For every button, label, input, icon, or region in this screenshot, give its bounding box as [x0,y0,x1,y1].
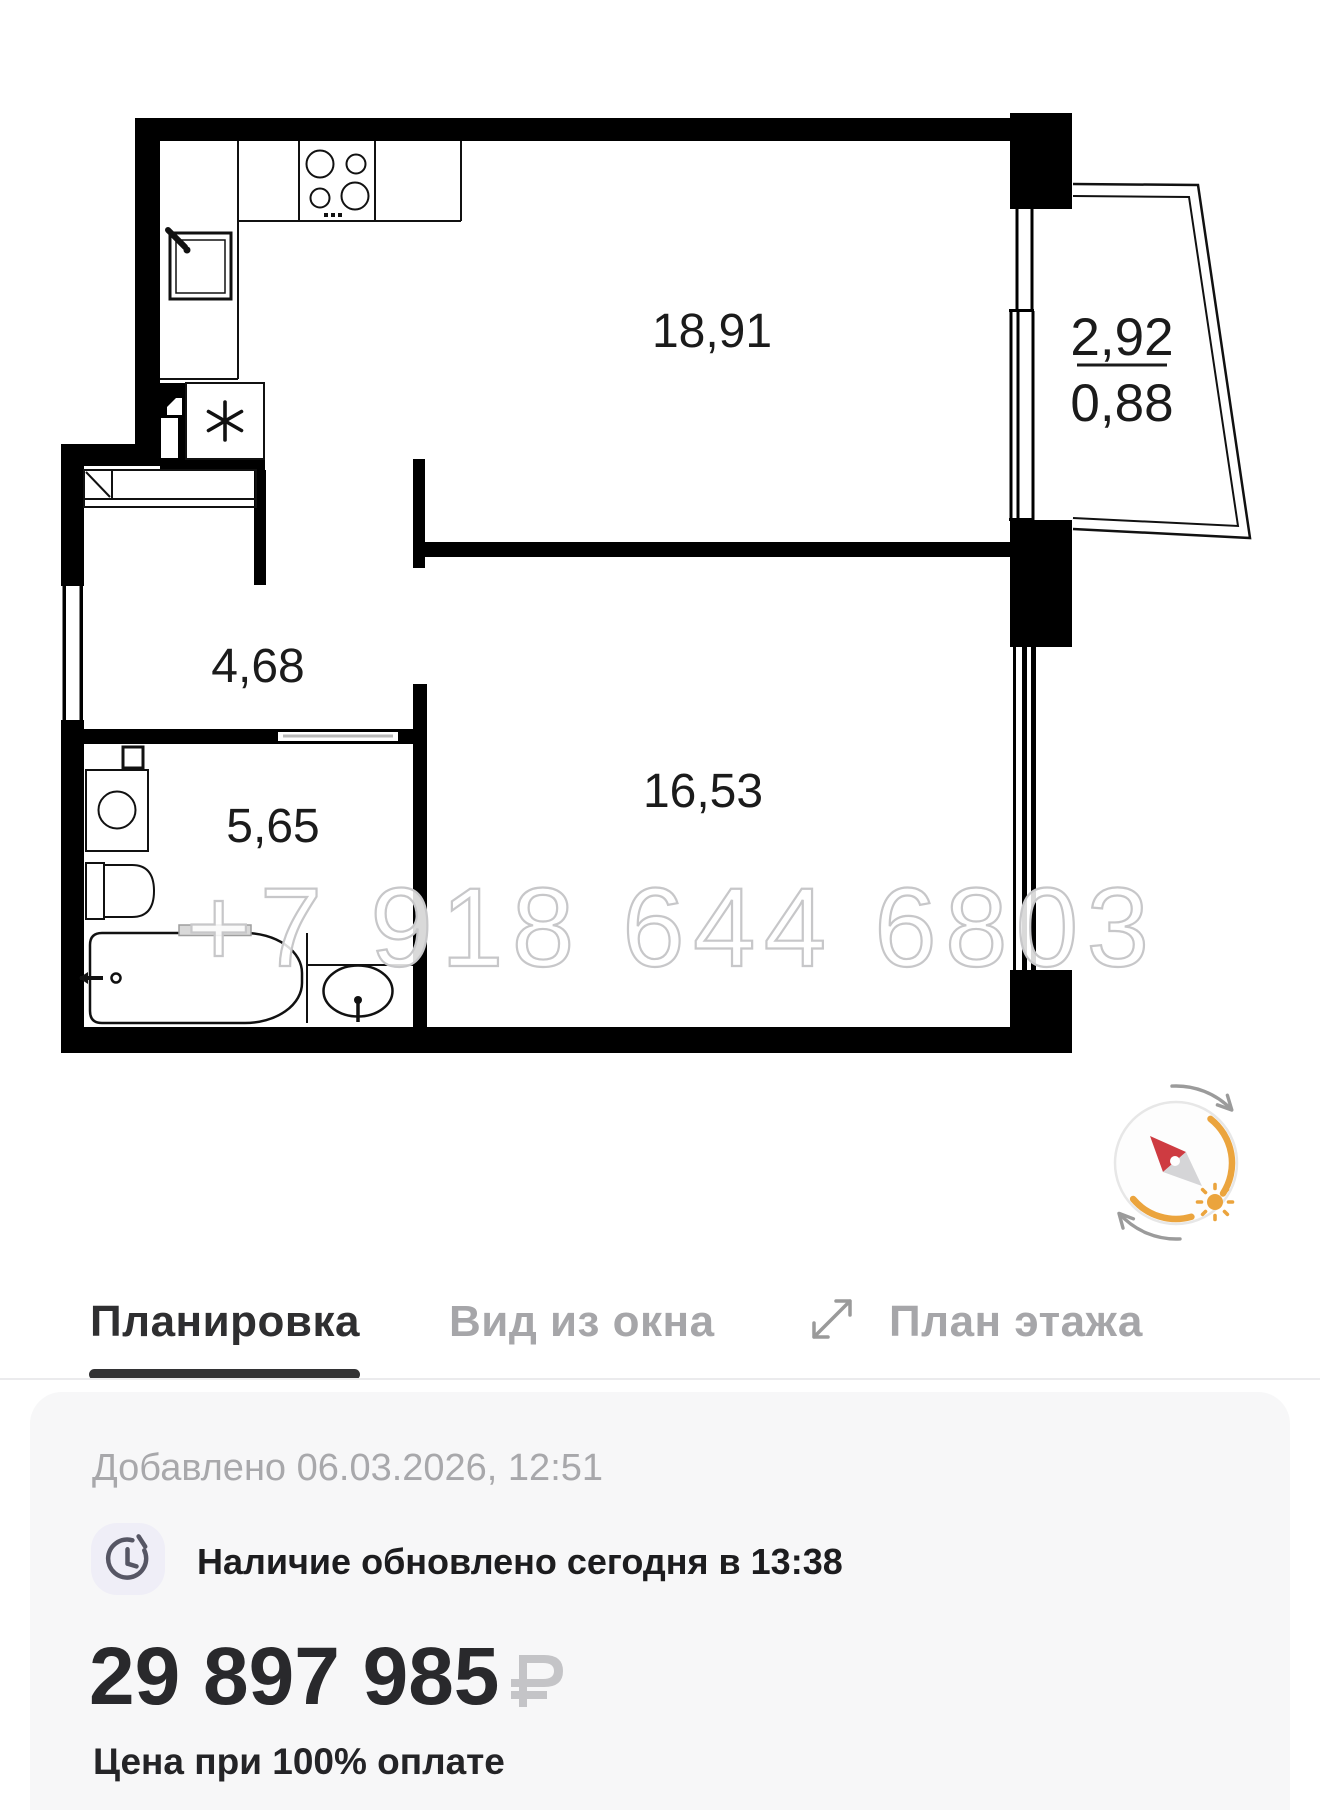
svg-text:+7 918 644 6803: +7 918 644 6803 [186,865,1157,990]
svg-text:5,65: 5,65 [226,800,319,853]
svg-text:2,92: 2,92 [1070,308,1173,367]
svg-text:4,68: 4,68 [211,640,304,693]
svg-text:0,88: 0,88 [1070,374,1173,433]
svg-text:16,53: 16,53 [643,765,763,818]
svg-text:18,91: 18,91 [652,305,772,358]
